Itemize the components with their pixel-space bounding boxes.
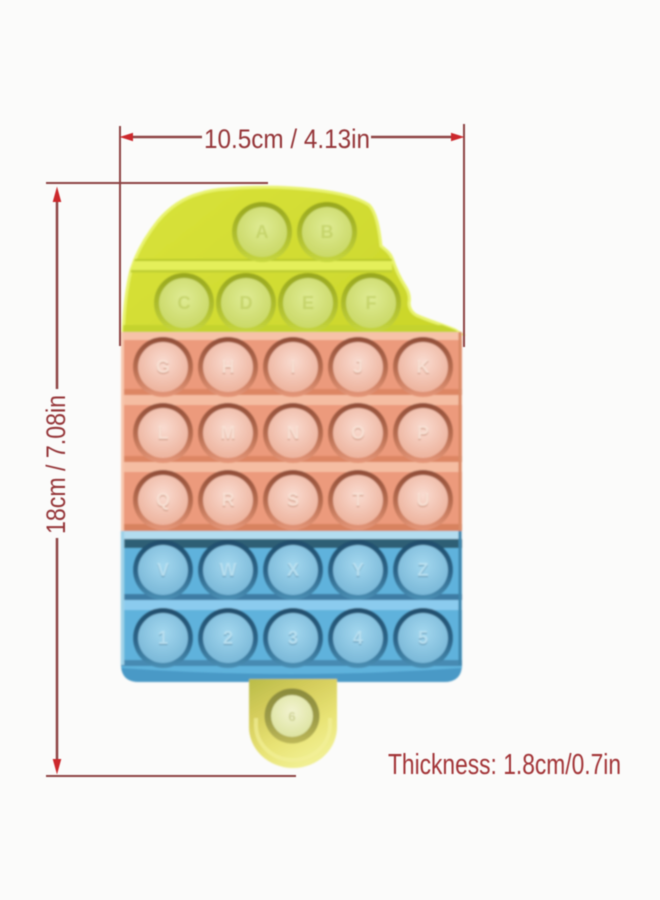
svg-text:P: P	[417, 423, 429, 443]
svg-text:W: W	[220, 560, 237, 580]
svg-text:U: U	[417, 490, 430, 510]
svg-text:N: N	[287, 423, 300, 443]
svg-text:C: C	[178, 293, 191, 313]
svg-text:Thickness: 1.8cm/0.7in: Thickness: 1.8cm/0.7in	[388, 749, 621, 781]
svg-text:A: A	[256, 222, 269, 242]
svg-text:Y: Y	[352, 560, 364, 580]
svg-text:18cm / 7.08in: 18cm / 7.08in	[41, 395, 71, 534]
svg-text:K: K	[417, 357, 430, 377]
svg-text:S: S	[287, 490, 299, 510]
svg-text:1: 1	[158, 628, 168, 648]
svg-text:V: V	[157, 560, 169, 580]
svg-text:R: R	[222, 490, 235, 510]
svg-text:3: 3	[288, 628, 298, 648]
svg-text:H: H	[222, 357, 235, 377]
svg-text:10.5cm / 4.13in: 10.5cm / 4.13in	[204, 124, 370, 154]
svg-text:E: E	[302, 293, 314, 313]
svg-text:L: L	[158, 423, 169, 443]
svg-text:B: B	[321, 222, 334, 242]
svg-text:4: 4	[353, 628, 363, 648]
svg-text:M: M	[221, 423, 236, 443]
svg-text:I: I	[290, 357, 295, 377]
svg-text:F: F	[366, 293, 377, 313]
svg-text:D: D	[240, 293, 253, 313]
svg-text:Z: Z	[418, 560, 429, 580]
svg-text:Q: Q	[156, 490, 170, 510]
svg-text:J: J	[353, 357, 363, 377]
svg-text:X: X	[287, 560, 299, 580]
svg-text:T: T	[353, 490, 364, 510]
svg-text:G: G	[156, 357, 170, 377]
svg-text:6: 6	[288, 709, 295, 724]
svg-text:2: 2	[223, 628, 233, 648]
svg-text:5: 5	[418, 628, 428, 648]
svg-text:O: O	[351, 423, 365, 443]
